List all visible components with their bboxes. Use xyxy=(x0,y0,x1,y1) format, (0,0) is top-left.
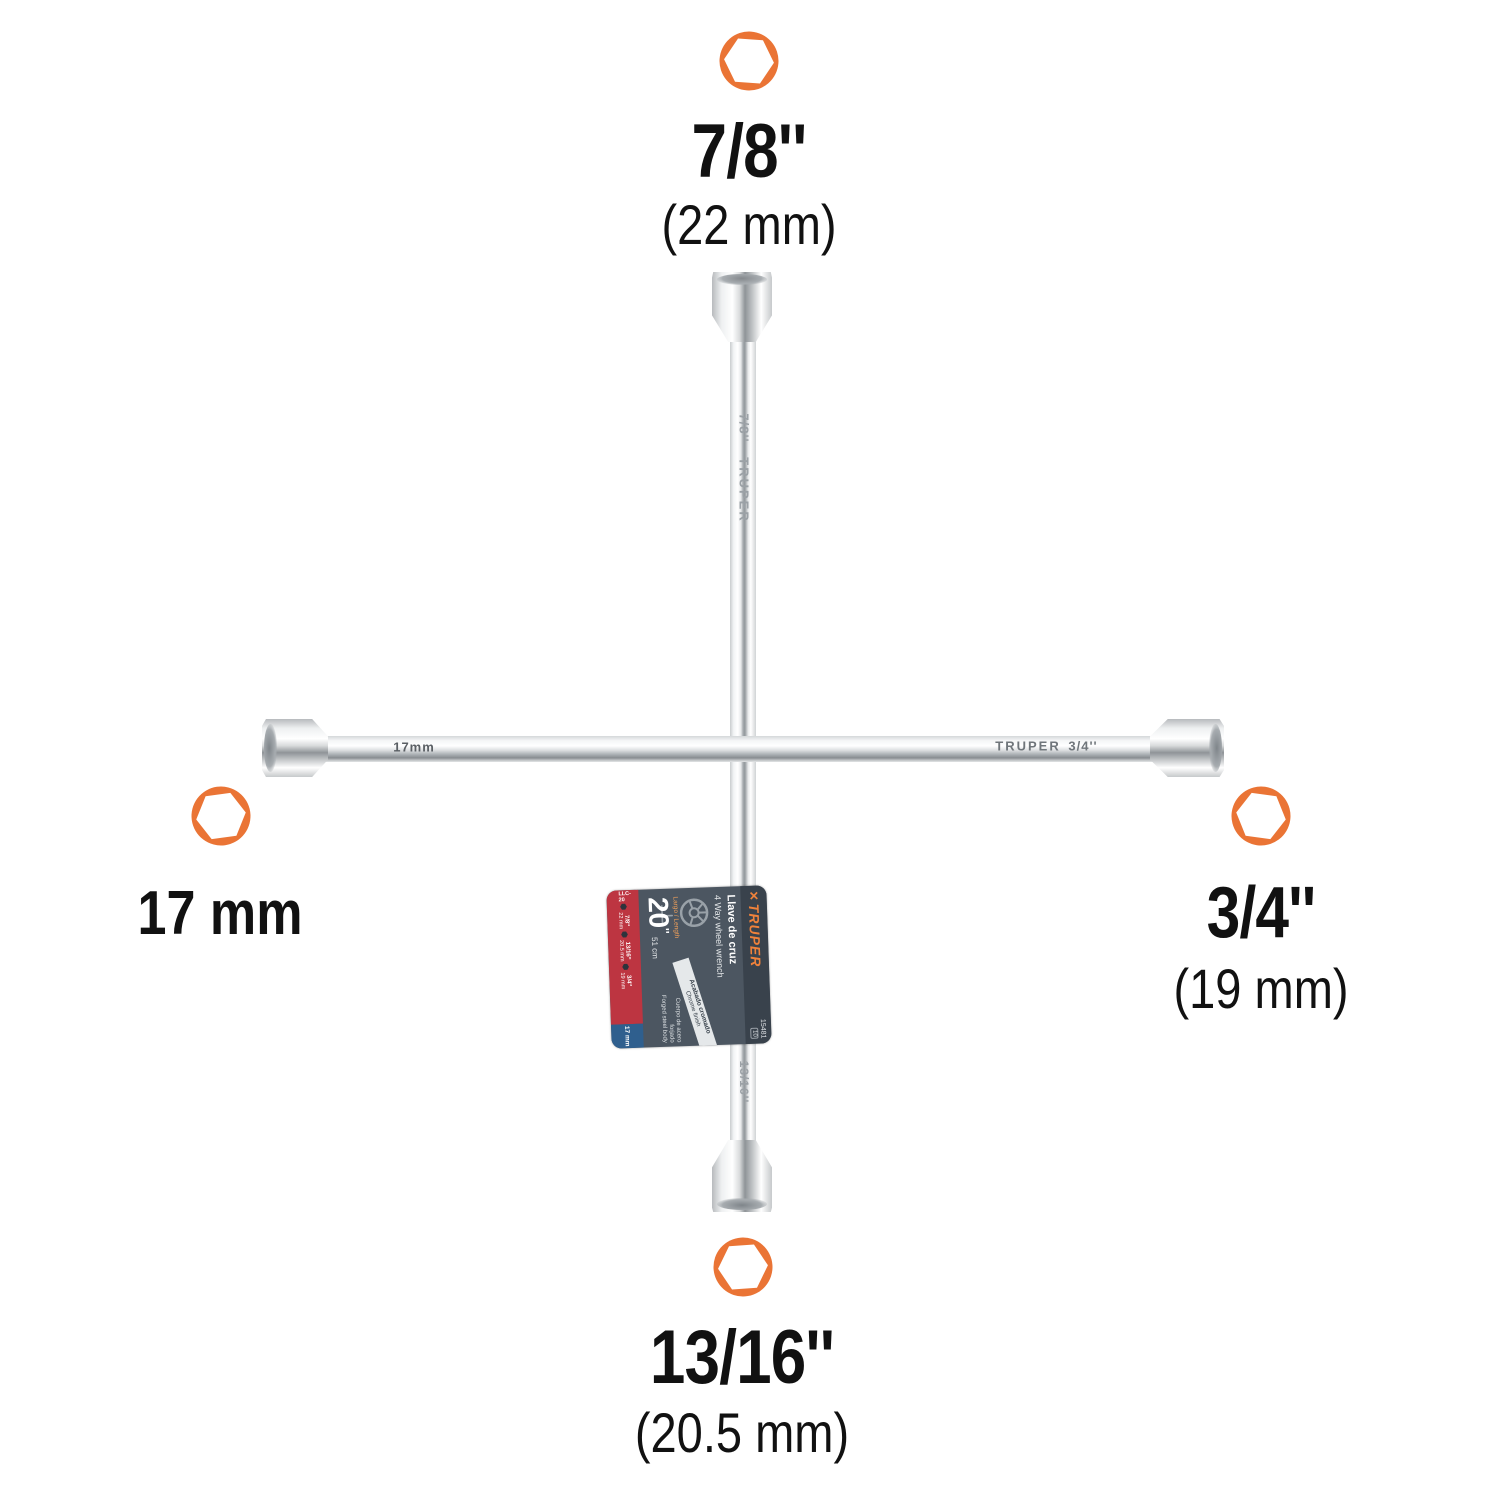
callout-left-size: 17 mm xyxy=(137,878,302,949)
truper-logo-icon: ✕ xyxy=(747,890,759,900)
hex-bullet-icon: ⬢ xyxy=(620,931,628,938)
tag-size-1: 13/16'' xyxy=(624,942,631,960)
hex-socket-icon-bottom xyxy=(709,1233,777,1301)
tag-length-cm: 51 cm xyxy=(650,937,660,959)
callout-bottom-size: 13/16'' xyxy=(650,1314,834,1401)
hex-socket-icon-top xyxy=(715,27,783,95)
bar-engraving-brand: TRUPER xyxy=(995,739,1060,754)
tag-metric-size: 17 mm xyxy=(624,1026,632,1047)
shaft-engraving-size: 7/8'' xyxy=(737,413,752,442)
callout-top-size: 7/8'' xyxy=(692,108,807,195)
tag-material-en: Forged steel body xyxy=(660,995,668,1043)
bar-engraving-size: 3/4'' xyxy=(1068,739,1097,754)
callout-bottom-mm: (20.5 mm) xyxy=(635,1400,849,1465)
callout-right-mm: (19 mm) xyxy=(1173,956,1348,1021)
tag-warranty-badge: 10 xyxy=(750,1028,759,1039)
wrench-socket-bottom xyxy=(712,1140,772,1212)
tag-size-0-mm: 22 mm xyxy=(617,912,624,929)
tag-body: Llave de cruz 4 Way wheel wrench xyxy=(638,886,745,1047)
tag-size-2: 3/4'' xyxy=(625,975,632,986)
tag-sizes-red-band: LLC-20 ⬢ 7/8'' 22 mm ⬢ 13/16'' 20.5 mm ⬢… xyxy=(606,890,643,1025)
tag-length-row: 20 '' 51 cm xyxy=(644,897,674,960)
wrench-socket-top xyxy=(712,272,772,342)
tag-length-unit: '' xyxy=(659,928,671,934)
tag-title-es: Llave de cruz xyxy=(724,894,738,964)
tag-material-text: Cuerpo de acero forjado Forged steel bod… xyxy=(658,978,682,1043)
callout-right-size: 3/4'' xyxy=(1207,872,1316,954)
tag-sku: 15481 xyxy=(758,1019,766,1039)
hex-socket-icon-right xyxy=(1225,780,1297,852)
tag-material-es: Cuerpo de acero forjado xyxy=(668,998,682,1043)
hex-socket-icon-left xyxy=(185,780,257,852)
tag-size-1-mm: 20.5 mm xyxy=(618,940,625,962)
tag-model: LLC-20 xyxy=(618,891,626,903)
hex-bullet-icon: ⬢ xyxy=(619,903,627,910)
wrench-socket-right xyxy=(1150,719,1224,777)
product-image: 7/8'' TRUPER 13/16'' 17mm TRUPER 3/4'' 7… xyxy=(0,0,1500,1500)
tag-size-entry: 3/4'' 19 mm xyxy=(619,972,632,989)
shaft-engraving-brand: TRUPER xyxy=(737,457,752,522)
tag-size-2-mm: 19 mm xyxy=(619,972,626,989)
product-tag: ✕ TRUPER 15481 10 Llave de cruz 4 Way wh… xyxy=(606,885,771,1048)
tag-size-0: 7/8'' xyxy=(623,915,630,926)
tag-size-entry: 7/8'' 22 mm xyxy=(617,912,630,929)
tag-title-en: 4 Way wheel wrench xyxy=(713,895,726,978)
tag-brand: TRUPER xyxy=(746,903,766,1016)
bar-engraving-17mm: 17mm xyxy=(393,740,435,755)
callout-top-mm: (22 mm) xyxy=(661,192,836,257)
shaft-engraving-bottom-size: 13/16'' xyxy=(737,1061,751,1104)
wrench-socket-left xyxy=(262,719,328,777)
tag-size-entry: 13/16'' 20.5 mm xyxy=(618,940,631,962)
tag-metric-blue-band: 17 mm xyxy=(611,1024,644,1049)
hex-bullet-icon: ⬢ xyxy=(621,963,629,970)
tag-length-value: 20 xyxy=(644,897,673,929)
